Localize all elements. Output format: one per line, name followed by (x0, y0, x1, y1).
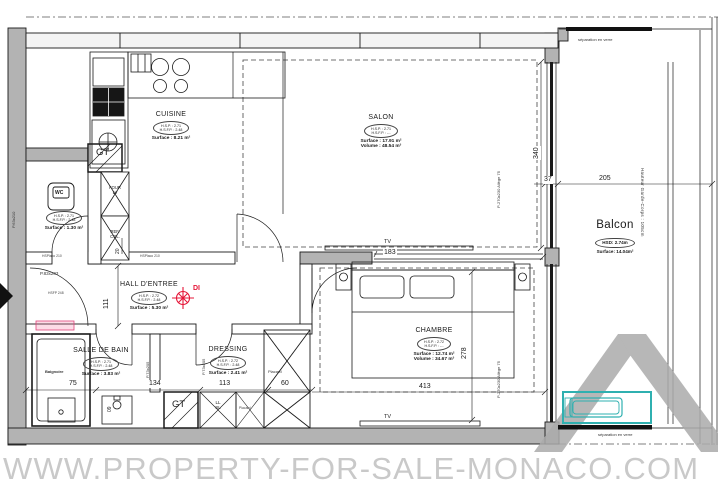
entry-door-label: P.83x203 (40, 271, 58, 276)
dim-340: 340 (533, 146, 541, 160)
dim-413: 413 (418, 383, 432, 391)
room-label-balcon: Balcon HSD: 2.74m Surface: 14.04m² (567, 219, 663, 254)
room-name: HALL D'ENTREE (101, 281, 197, 288)
dim-60: 60 (280, 380, 290, 388)
four-lv-label: FOUR LV (104, 186, 126, 196)
wc-door-label: P.63x210 (12, 212, 17, 228)
ll-sl-label: LL SL (207, 400, 229, 411)
facade-windows (547, 62, 556, 422)
salon-chambre-opening (374, 254, 543, 259)
tv-label-salon: TV (384, 239, 391, 245)
ref-cgl-label: REF. CGL. (104, 230, 126, 240)
baignoire-label: Baignoire (45, 370, 63, 375)
dim-205: 205 (598, 175, 612, 183)
floorplan: CUISINE H.S.P. : 2.71H.S.F.P. : 2.48 Sur… (0, 0, 724, 488)
room-name: CHAMBRE (386, 327, 482, 334)
kitchen-salon-divider (233, 52, 283, 214)
room-label-wc: H.S.P. : 2.71H.S.F.P. : 2.48 Surface : 1… (16, 208, 112, 231)
hsplaco-label-2: HSPlaco 210 (140, 255, 160, 259)
room-label-salle-de-bain: SALLE DE BAIN H.S.P. : 2.71H.S.F.P. : 2.… (53, 347, 149, 377)
room-name: SALON (333, 114, 429, 121)
chambre-door-arc (312, 268, 357, 313)
kitchen-door-arc (237, 214, 283, 262)
room-name: DRESSING (180, 346, 276, 353)
glass-separation-top (566, 27, 652, 31)
hsplaco-label-1: HSPlaco 210 (42, 255, 62, 259)
dim-183: 183 (383, 249, 397, 257)
watermark-url: WWW.PROPERTY-FOR-SALE-MONACO.COM (3, 451, 699, 487)
bathroom-door-label: P.73x205 (146, 362, 151, 378)
gt-label-kitchen: GT (96, 148, 109, 159)
entry-door-arc (30, 268, 88, 326)
separation-bottom-label: séparation en verre (598, 433, 632, 438)
room-name: CUISINE (123, 111, 219, 118)
room-label-dressing: DRESSING H.S.P. : 2.72H.S.F.P. : 2.48 Su… (180, 346, 276, 376)
dim-111: 111 (103, 297, 111, 310)
placard-strip-label: Placard (239, 407, 251, 411)
garde-corps-label: Hauteur Garde-Corps : 105cm (640, 168, 645, 237)
salon-window-label: P-270x230 Allège 75 (497, 171, 502, 208)
top-wall (26, 33, 558, 48)
placard-column-label: Placard (268, 370, 282, 375)
dim-134: 134 (148, 380, 162, 388)
dim-37: 37 (543, 176, 553, 184)
room-label-cuisine: CUISINE H.S.P. : 2.71H.S.F.P. : 2.48 Sur… (123, 111, 219, 141)
separation-top-label: séparation en verre (578, 38, 612, 43)
di-label: DI (193, 285, 200, 293)
placard-column (264, 330, 310, 428)
gt-label-utility: GT (172, 400, 185, 411)
room-label-hall: HALL D'ENTREE H.S.P. : 2.72H.S.F.P. : 2.… (101, 281, 197, 311)
dim-75: 75 (68, 380, 78, 388)
dressing-door-label: P.73x205 (202, 359, 207, 375)
dim-278: 278 (461, 346, 469, 360)
room-label-salon: SALON H.S.P. : 2.71H.S.F.P. : -.- Surfac… (333, 114, 429, 149)
glass-separation-bottom (558, 425, 652, 430)
dim-20: 20 (116, 248, 122, 254)
tv-label-chambre: TV (384, 414, 391, 420)
entry-door-hsfp-label: HSFP 248 (48, 292, 64, 296)
entry-mat (36, 321, 74, 330)
room-name: SALLE DE BAIN (53, 347, 149, 354)
salon-ceiling-dashed (243, 60, 537, 247)
dim-113: 113 (218, 380, 231, 388)
chambre-window-label: P-270x230 Allège 75 (497, 361, 502, 398)
room-name: Balcon (567, 219, 663, 231)
room-name-wc: WC (55, 191, 63, 197)
dim-09: 09 (108, 406, 114, 412)
